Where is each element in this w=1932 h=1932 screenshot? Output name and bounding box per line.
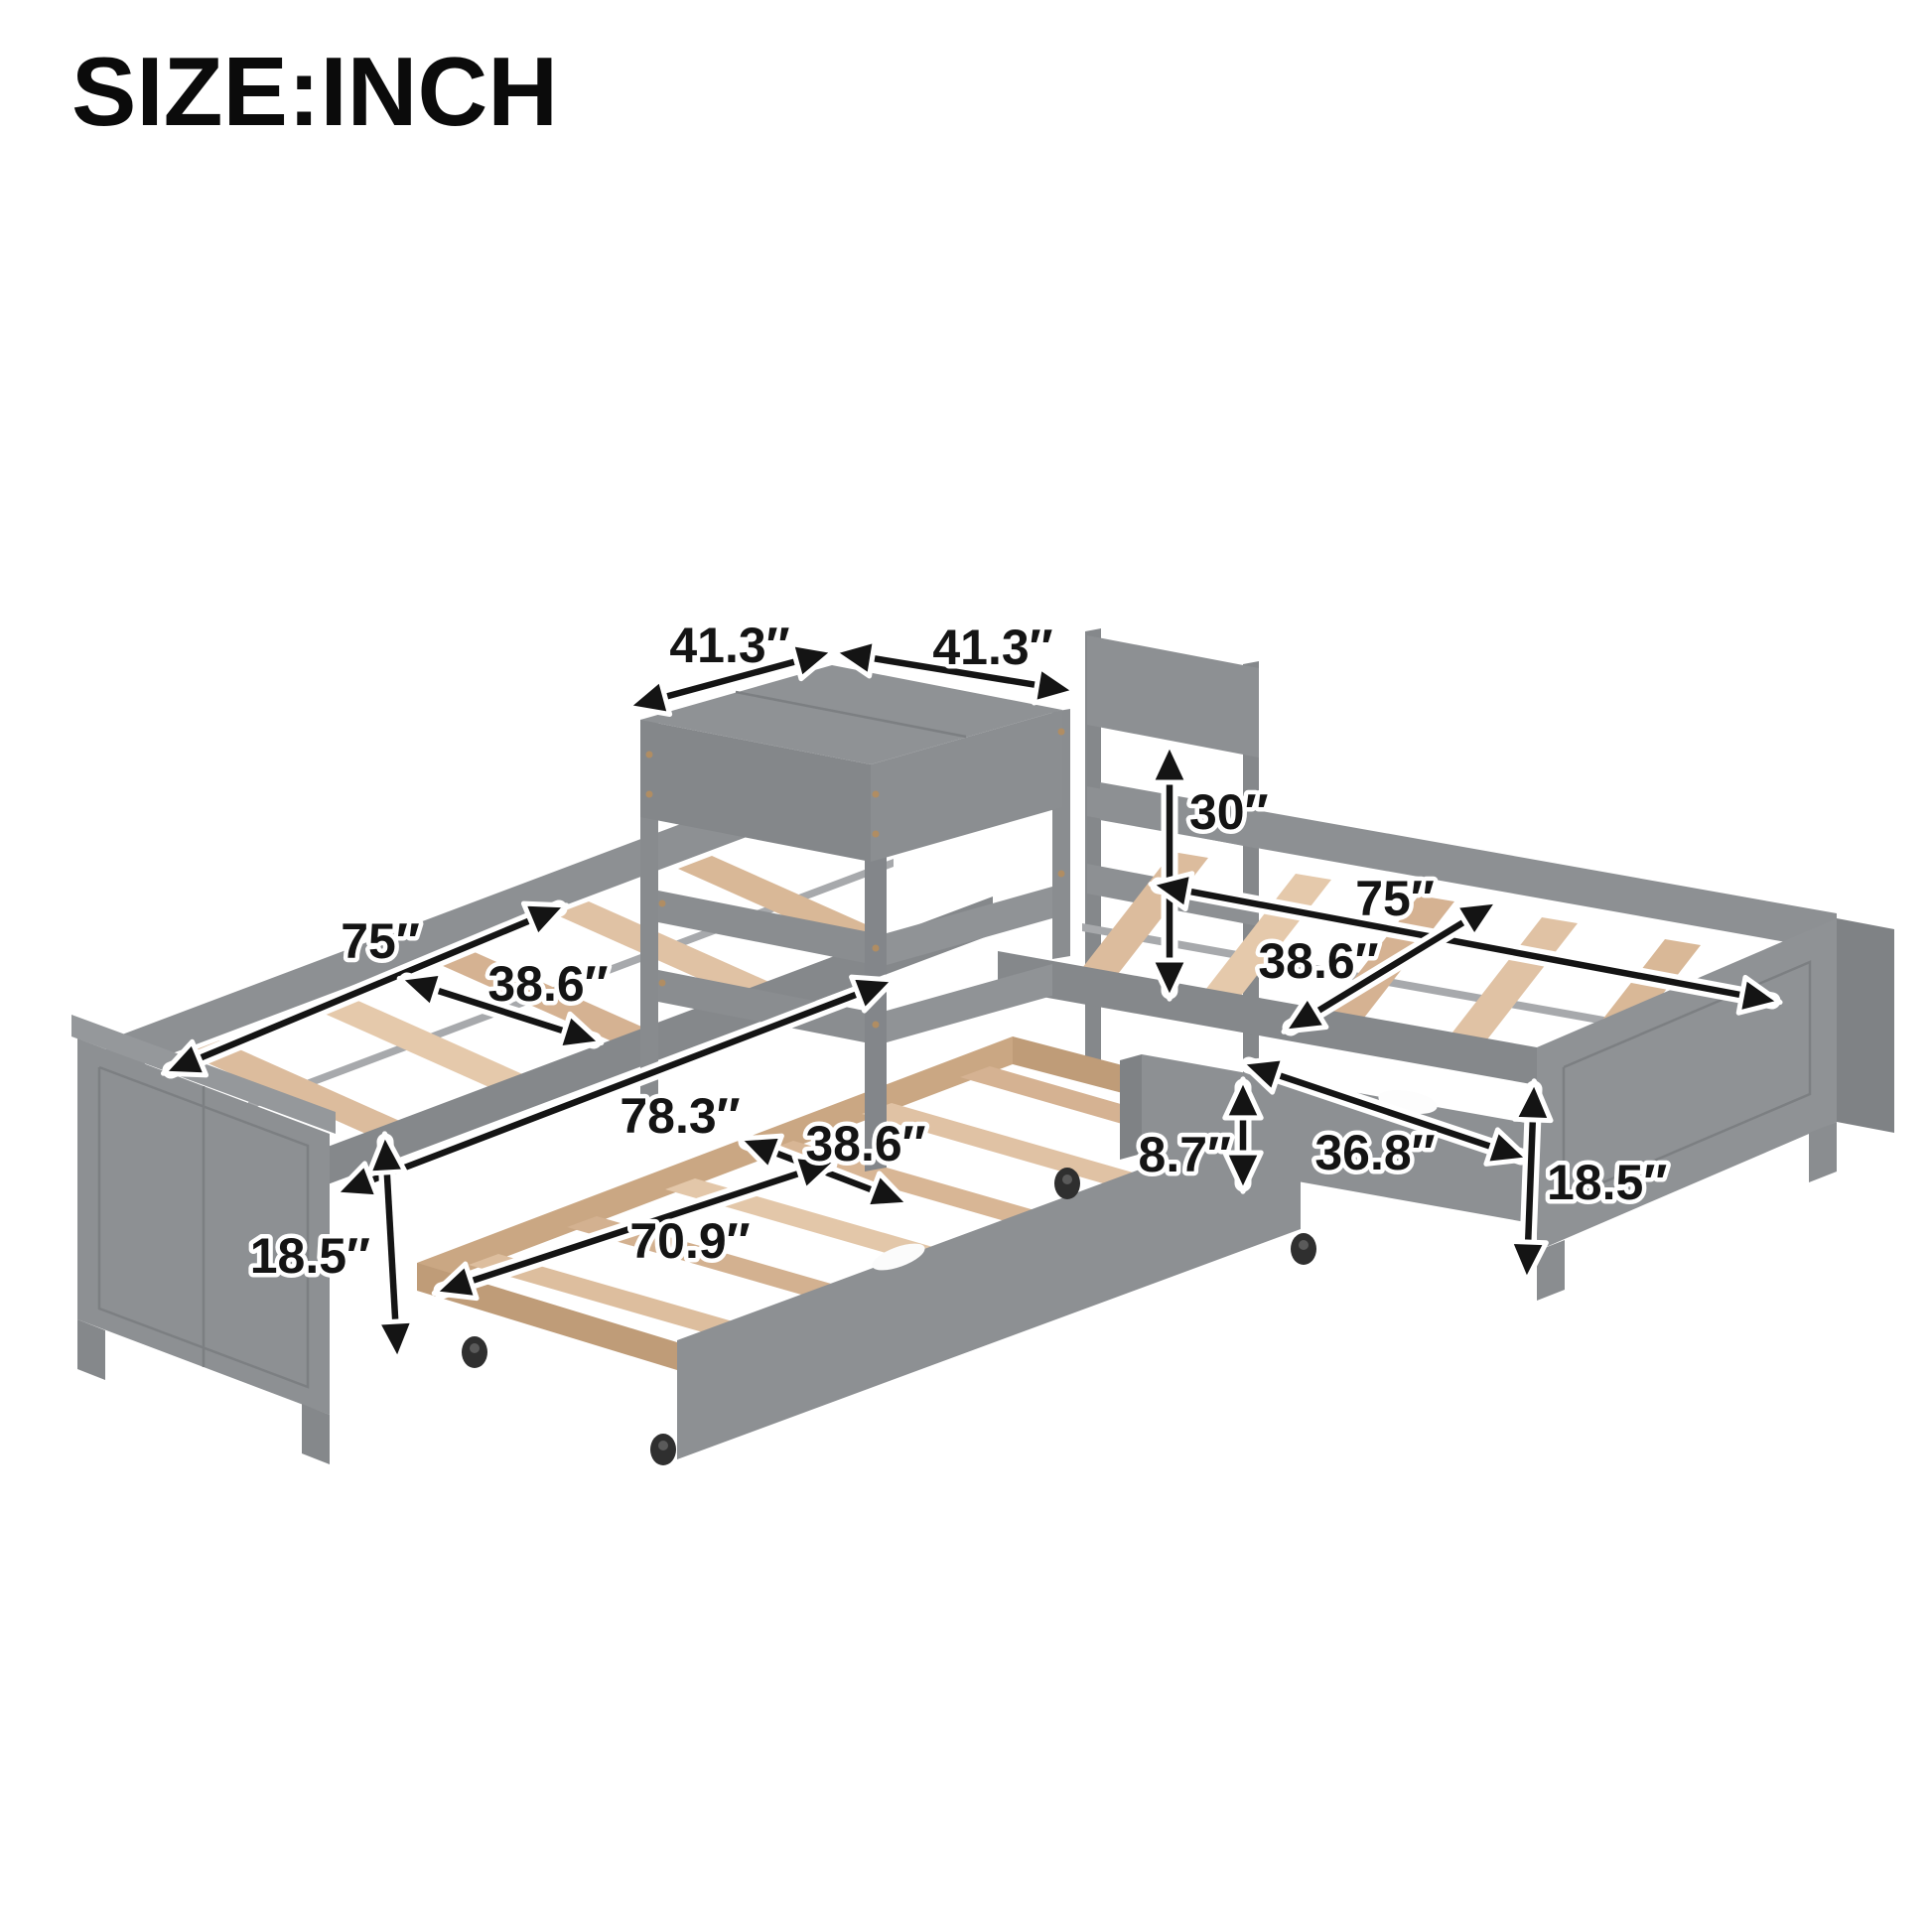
dim-label-right-footboard-height: 18.5″ xyxy=(1547,1155,1667,1210)
dim-arrow-right-footboard-height xyxy=(1527,1089,1534,1273)
dim-label-left-bed-length: 75″ xyxy=(341,913,420,969)
dim-label-trundle-length: 70.9″ xyxy=(629,1213,750,1269)
bed-dimension-diagram: 41.3″ 41.3″ 30″ 75″ 38.6″ 75″ 38.6″ 78.3… xyxy=(0,0,1932,1932)
dim-label-right-bed-length: 75″ xyxy=(1355,871,1435,926)
dim-label-table-left: 41.3″ xyxy=(669,618,789,673)
dim-label-table-height: 30″ xyxy=(1189,784,1269,840)
right-bed-footboard xyxy=(1537,918,1894,1301)
size-diagram-page: SIZE:INCH xyxy=(0,0,1932,1932)
dim-label-trundle-height: 8.7″ xyxy=(1139,1127,1232,1182)
dim-label-drawer-length: 36.8″ xyxy=(1314,1125,1435,1180)
dim-label-left-footboard-height: 18.5″ xyxy=(250,1228,370,1284)
dim-label-trundle-width: 38.6″ xyxy=(805,1116,925,1172)
dim-arrow-left-footboard-height xyxy=(385,1142,397,1352)
dim-label-left-bed-width: 38.6″ xyxy=(487,956,608,1012)
dim-label-overall-length: 78.3″ xyxy=(620,1088,740,1144)
dim-label-table-right: 41.3″ xyxy=(932,620,1052,675)
dim-label-right-bed-width: 38.6″ xyxy=(1258,933,1378,989)
